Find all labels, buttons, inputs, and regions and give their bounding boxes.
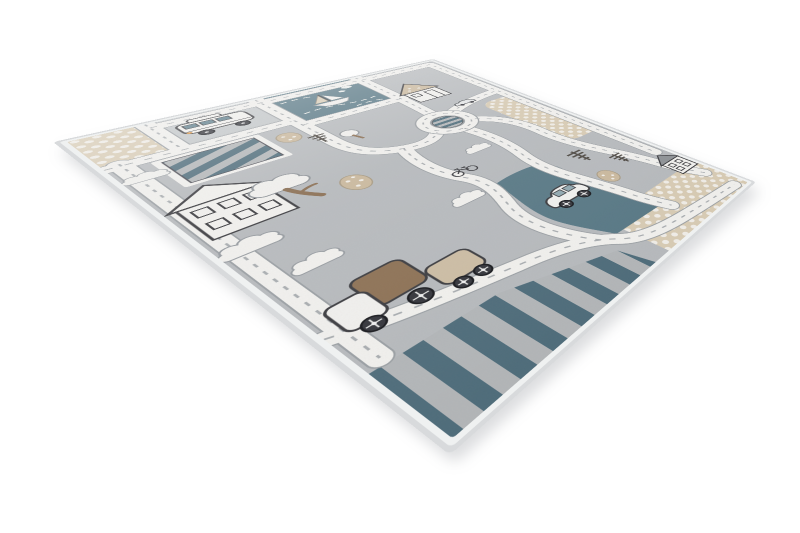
photo-canvas (0, 0, 800, 533)
